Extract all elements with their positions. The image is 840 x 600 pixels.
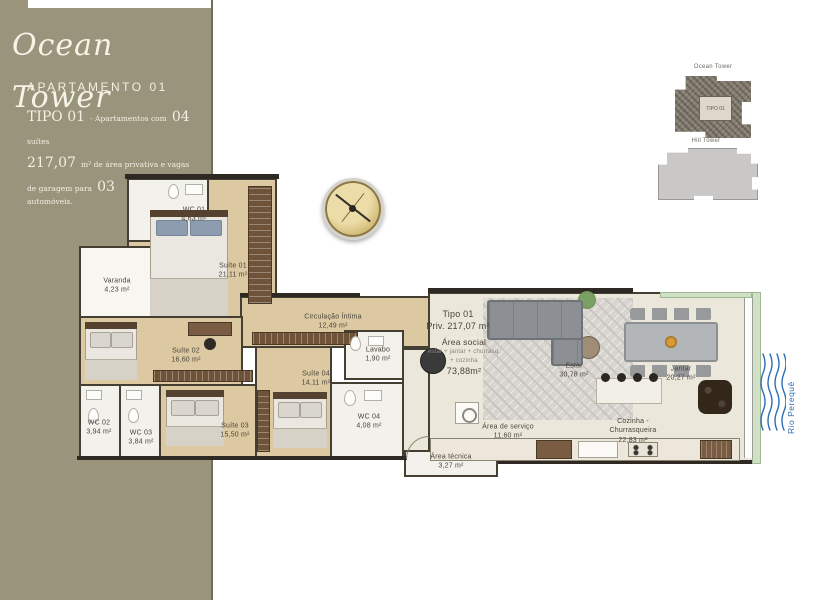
pillow [195,400,219,416]
washing-machine-icon [455,402,479,424]
pillow [90,332,112,348]
closet-suite02 [153,370,253,382]
label-varanda: Varanda4,23 m² [103,277,130,296]
keyplan-ocean-label: Ocean Tower [694,64,733,70]
label-suite02: Suíte 0216,60 m² [171,347,200,366]
label-wc03: WC 033,84 m² [128,429,153,448]
toilet-wc03 [128,408,139,423]
duvet [85,359,137,380]
keyplan-unit-highlight: TIPO 01 [699,96,732,121]
bed-suite04 [273,392,327,448]
label-servico: Área de serviço11,60 m² [482,423,534,442]
label-estar: Estar30,78 m² [559,362,588,381]
sink-lavabo [368,336,384,346]
river-marker: Rio Perequê [760,350,808,436]
label-wc04: WC 044,08 m² [356,413,381,432]
label-tipo-priv: Tipo 01Priv. 217,07 m² [426,308,489,332]
river-label: Rio Perequê [786,352,796,434]
duvet [150,278,228,316]
table-centerpiece [665,336,677,348]
desk-suite02 [188,322,232,336]
ottoman-dark [698,380,732,414]
closet-suite01 [248,186,272,304]
stool [601,373,610,382]
pillow [111,332,133,348]
river-waves-icon [760,350,786,434]
label-suite01: Suíte 0121,11 m² [219,262,248,281]
wall-bottom-left [77,456,407,460]
stool [617,373,626,382]
window-glazing [744,298,753,458]
label-wc01: WC 014,63 m² [181,206,206,225]
bed-suite03 [166,390,224,446]
chair-suite02 [204,338,216,350]
label-suite03: Suíte 0315,50 m² [220,422,249,441]
label-tecnica: Área técnica3,27 m² [430,453,471,472]
pillow [278,402,300,418]
headboard [273,392,327,399]
label-circulacao: Circulação Íntima12,49 m² [304,313,361,332]
pillow [171,400,195,416]
closet-suite04 [257,390,270,452]
sink-wc02 [86,390,102,400]
label-cozinha: Cozinha -Churrasqueira22,83 m² [610,417,657,445]
label-suite04: Suíte 0414,11 m² [302,370,331,389]
sink-wc01 [185,184,203,195]
compass-center [349,205,356,212]
planter-strip-top [660,292,752,298]
label-jantar: Jantar20,27 m² [666,365,695,384]
bed-suite02 [85,322,137,380]
label-area-social: Área social estar + jantar + churrasq. +… [428,337,500,377]
wall-top-suite01 [125,174,279,179]
sink-wc03 [126,390,142,400]
toilet-wc04 [344,390,356,406]
wall-top-social [428,288,633,293]
bed-suite01 [150,210,228,316]
headboard [166,390,224,397]
dining-chairs-top [630,308,712,320]
grill-icon [700,440,732,459]
closet-corridor [252,332,358,345]
floorplan-sheet: Ocean Tower APARTAMENTO 01 TIPO 01 - Apa… [0,0,840,600]
cabinet-wood [536,440,572,459]
label-wc02: WC 023,94 m² [86,419,111,438]
pillow [300,402,322,418]
sink-wc04 [364,390,382,401]
stool [633,373,642,382]
keyplan-hill-thumbnail [658,148,758,200]
duvet [166,426,224,446]
label-lavabo: Lavabo1,90 m² [365,346,390,365]
stool [649,373,658,382]
duvet [273,428,327,448]
compass-icon [322,178,384,240]
toilet-lavabo [350,336,361,351]
headboard [85,322,137,329]
sofa [487,300,583,340]
keyplan-hill-label: Hill Tower [692,138,721,144]
toilet-wc01 [168,184,179,199]
